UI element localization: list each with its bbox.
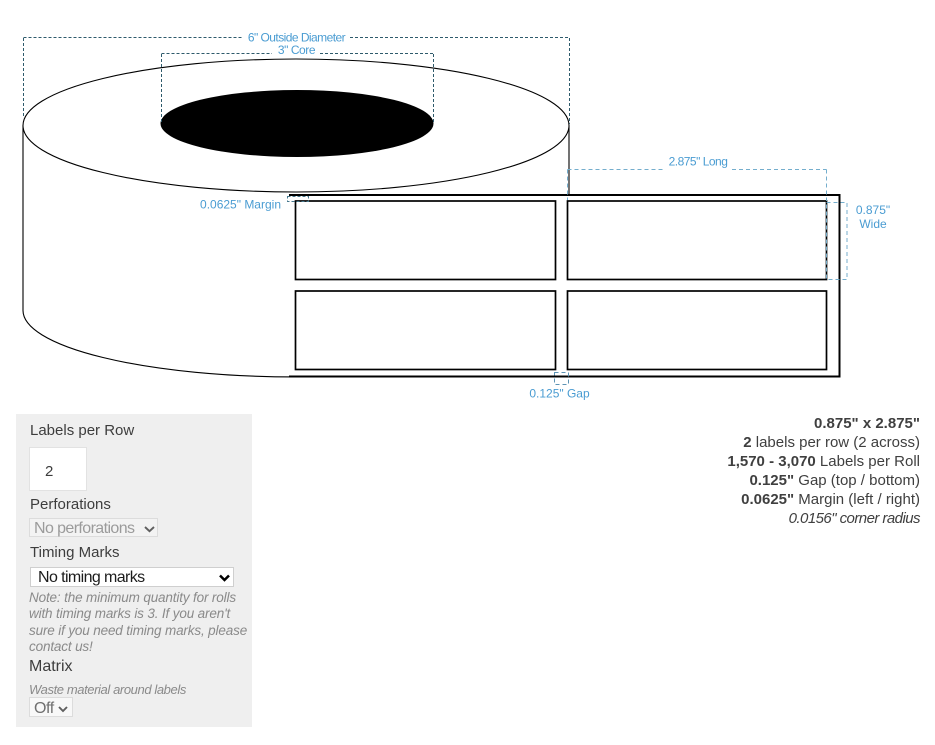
svg-text:Wide: Wide (859, 217, 887, 231)
svg-text:0.0625" Margin: 0.0625" Margin (200, 198, 281, 212)
svg-text:2.875" Long: 2.875" Long (669, 155, 728, 169)
svg-text:3" Core: 3" Core (278, 43, 316, 57)
svg-text:0.875": 0.875" (856, 203, 890, 217)
svg-text:0.125" Gap: 0.125" Gap (529, 387, 590, 401)
